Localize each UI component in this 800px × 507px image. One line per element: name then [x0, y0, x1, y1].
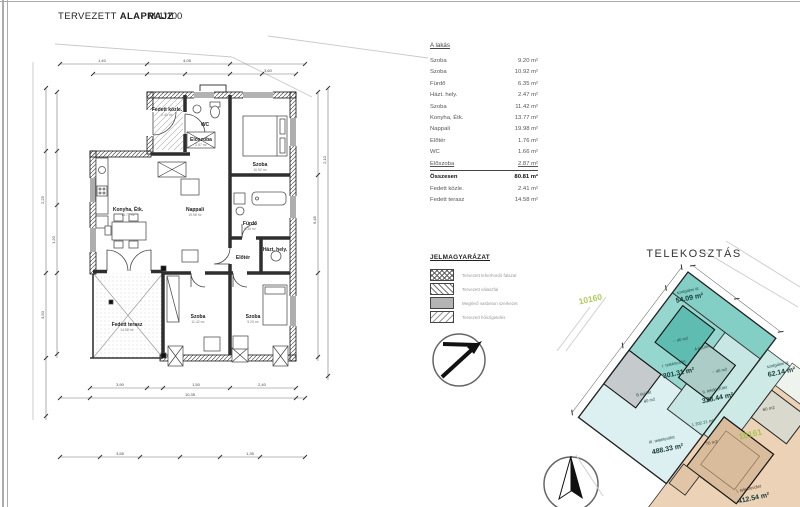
legend-item-label: Tervezett teherhordó falazat	[462, 273, 516, 278]
room-name: Szoba	[430, 102, 447, 113]
dim-number: 3,60	[264, 68, 273, 73]
dim-number: 10,35	[185, 392, 196, 397]
dim-number: 1,35	[246, 451, 255, 456]
dim-number: 1,50	[192, 382, 201, 387]
room-area-terasz: 14.58 m²	[120, 328, 134, 332]
room-name: Konyha, Étk.	[430, 113, 463, 124]
dim-number: 3,55	[116, 451, 125, 456]
table-row: Előtér1.76 m²	[430, 136, 538, 147]
dim-number: 3,90	[116, 382, 125, 387]
dim-number: 2,10	[322, 155, 327, 164]
legend-title: JELMAGYARÁZAT	[430, 254, 550, 261]
room-name: Szoba	[430, 67, 447, 78]
room-area: 1.66 m²	[518, 147, 538, 158]
scale-label: M 1:100	[148, 11, 182, 22]
dim-number: 4,05	[183, 58, 192, 63]
bed-bottom	[263, 285, 287, 325]
north-arrow-icon-small	[544, 456, 598, 507]
room-name: Szoba	[430, 56, 447, 67]
room-area: 11.42 m²	[515, 102, 538, 113]
room-name: Fedett terasz	[430, 195, 464, 206]
dim-number: 1,40	[98, 58, 107, 63]
room-schedule: A lakás Szoba9.20 m² Szoba10.92 m² Fürdő…	[430, 42, 538, 207]
kitchen-counter	[96, 158, 108, 228]
terrace-area	[93, 273, 163, 358]
legend-item: Meglévő vasbeton szerkezet	[430, 296, 550, 310]
table-row: Nappali19.98 m²	[430, 124, 538, 135]
parcel-number-left: 10160	[578, 292, 603, 307]
room-label-wc: WC	[201, 122, 210, 128]
insulation-swatch-icon	[430, 311, 454, 323]
room-area-fedett-kozle: 2.41 m²	[161, 113, 173, 117]
table-row: Szoba9.20 m²	[430, 56, 538, 67]
room-name: Előszoba	[430, 159, 454, 170]
room-area: 2.41 m²	[518, 184, 538, 195]
siteplan-title: TELEKOSZTÁS	[646, 247, 741, 260]
desks	[204, 336, 248, 351]
room-area-nappali: 19.98 m²	[188, 213, 202, 217]
room-name: WC	[430, 147, 440, 158]
floorplan: Fedett közle. 2.41 m² WC Előszoba 2.87 m…	[40, 58, 330, 459]
total-label: Összesen	[430, 171, 458, 184]
room-area: 6.35 m²	[518, 79, 538, 90]
dim-number: 2,25	[40, 195, 45, 204]
dim-number: 6,45	[312, 215, 317, 224]
table-row: WC1.66 m²	[430, 147, 538, 158]
bathtub	[234, 192, 286, 215]
total-value: 80.81 m²	[514, 171, 538, 184]
room-name: Nappali	[430, 124, 450, 135]
dim-number: 4,50	[40, 310, 45, 319]
room-area: 1.76 m²	[518, 136, 538, 147]
room-area: 10.92 m²	[515, 67, 538, 78]
concrete-swatch-icon	[430, 297, 454, 309]
room-label-konyha: Konyha, Étk.	[113, 205, 144, 213]
legend-item: Tervezett hőszigetelés	[430, 310, 550, 324]
table-row: Fedett közle.2.41 m²	[430, 184, 538, 195]
room-area-szoba-felso: 10.92 m²	[253, 168, 267, 172]
room-area-szoba-kozep: 11.42 m²	[191, 320, 205, 324]
room-label-eloter: Előtér	[236, 255, 250, 261]
room-area-szoba-also: 9.20 m²	[247, 320, 259, 324]
room-name: Előtér	[430, 136, 445, 147]
table-total-row: Összesen80.81 m²	[430, 170, 538, 184]
legend-item: Tervezett válaszfal	[430, 282, 550, 296]
drawing-sheet: Fedett közle. 2.41 m² WC Előszoba 2.87 m…	[0, 0, 800, 507]
room-label-hazt: Házt. hely.	[263, 247, 288, 253]
legend: JELMAGYARÁZAT Tervezett teherhordó falaz…	[430, 254, 550, 324]
legend-item-label: Tervezett válaszfal	[462, 287, 498, 292]
north-arrow-icon	[433, 334, 485, 386]
room-area: 13.77 m²	[515, 113, 538, 124]
living-room-furniture	[181, 179, 199, 262]
legend-item-label: Meglévő vasbeton szerkezet	[462, 301, 518, 306]
room-area-eloszoba: 2.87 m²	[195, 143, 207, 147]
room-name: Fedett közle.	[430, 184, 464, 195]
title-prefix: TERVEZETT	[58, 11, 120, 22]
table-row: Konyha, Étk.13.77 m²	[430, 113, 538, 124]
room-area: 9.20 m²	[518, 56, 538, 67]
room-name: Fürdő	[430, 79, 445, 90]
table-row: Előszoba2.87 m²	[430, 159, 538, 170]
legend-item-label: Tervezett hőszigetelés	[462, 315, 505, 320]
room-name: Házt. hely.	[430, 90, 457, 101]
legend-item: Tervezett teherhordó falazat	[430, 268, 550, 282]
room-area: 2.87 m²	[518, 159, 538, 170]
room-area: 14.58 m²	[515, 195, 538, 206]
dim-number: 1,20	[51, 235, 56, 244]
table-row: Szoba10.92 m²	[430, 67, 538, 78]
drawing-canvas: Fedett közle. 2.41 m² WC Előszoba 2.87 m…	[0, 0, 800, 507]
table-row: Fürdő6.35 m²	[430, 79, 538, 90]
table-row: Szoba11.42 m²	[430, 102, 538, 113]
room-area-konyha: 13.77 m²	[121, 213, 135, 217]
covered-entry-hatch	[152, 98, 183, 150]
room-area: 2.47 m²	[518, 90, 538, 101]
bed-top	[243, 116, 287, 156]
dining-table	[105, 214, 146, 248]
room-area-furdo: 6.35 m²	[244, 227, 256, 231]
table-row: Fedett terasz14.58 m²	[430, 195, 538, 206]
room-area: 19.98 m²	[515, 124, 538, 135]
dim-number: 2,40	[258, 382, 267, 387]
wardrobe	[167, 276, 179, 322]
wall-hatch-swatch-icon	[430, 269, 454, 281]
table-row: Házt. hely.2.47 m²	[430, 90, 538, 101]
toilet	[193, 102, 220, 118]
partition-hatch-swatch-icon	[430, 283, 454, 295]
room-schedule-header: A lakás	[430, 42, 538, 49]
